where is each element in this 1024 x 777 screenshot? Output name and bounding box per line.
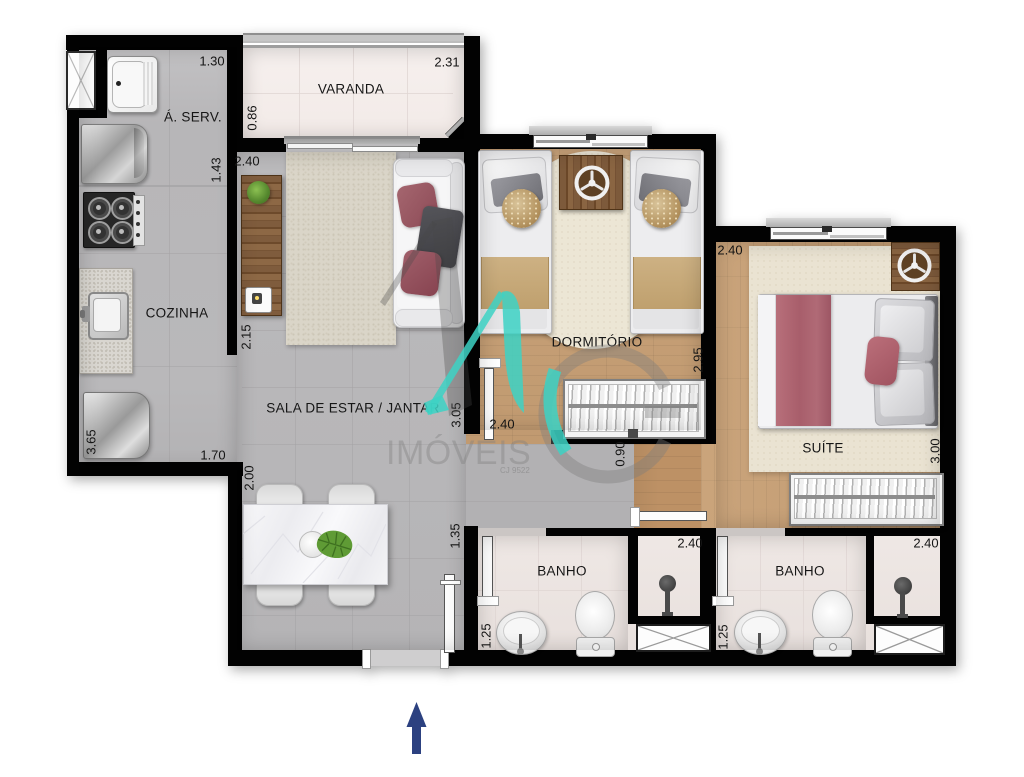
svg-text:CJ 9522: CJ 9522 bbox=[500, 466, 530, 475]
